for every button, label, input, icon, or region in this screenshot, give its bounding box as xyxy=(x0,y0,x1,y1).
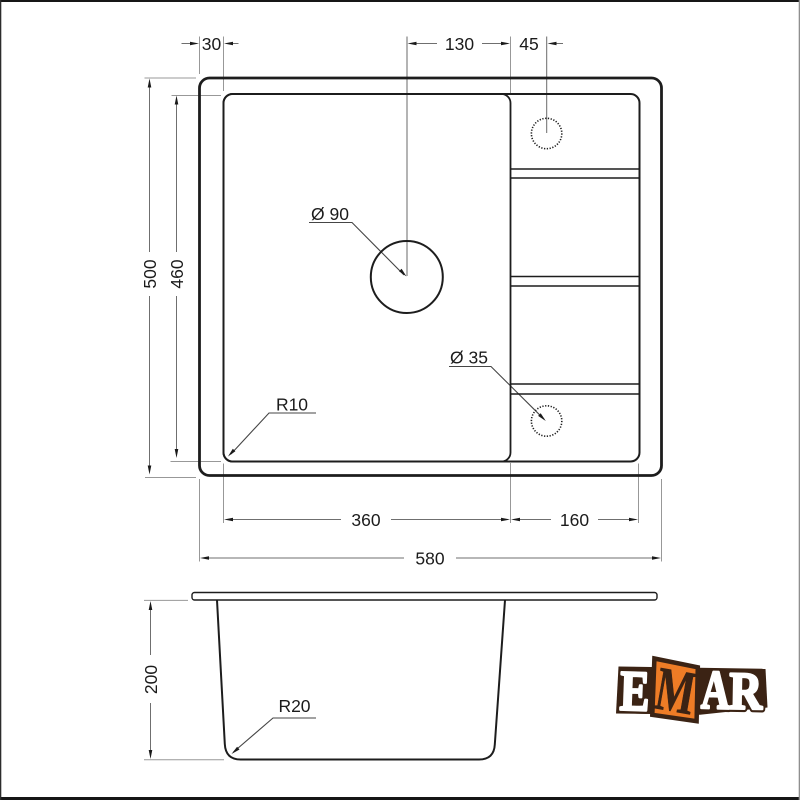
svg-text:E: E xyxy=(619,659,651,724)
svg-text:R20: R20 xyxy=(278,696,310,716)
svg-text:A: A xyxy=(700,660,731,722)
svg-text:30: 30 xyxy=(202,34,222,54)
svg-text:45: 45 xyxy=(519,34,538,54)
svg-text:R: R xyxy=(729,661,764,721)
svg-text:130: 130 xyxy=(445,34,474,54)
svg-text:Ø 35: Ø 35 xyxy=(450,347,488,367)
svg-text:460: 460 xyxy=(167,259,187,288)
svg-text:Ø 90: Ø 90 xyxy=(311,204,349,224)
svg-text:R10: R10 xyxy=(276,394,308,414)
svg-text:500: 500 xyxy=(140,259,160,288)
svg-text:160: 160 xyxy=(560,510,589,530)
svg-text:200: 200 xyxy=(141,665,161,694)
svg-text:580: 580 xyxy=(415,548,444,568)
svg-text:360: 360 xyxy=(351,510,380,530)
